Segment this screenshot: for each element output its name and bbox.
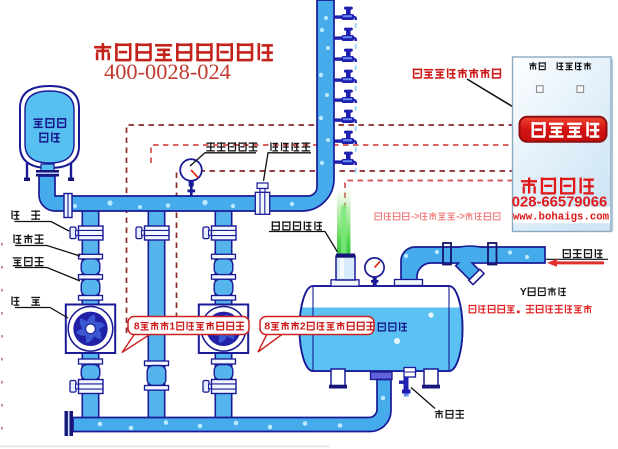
svg-text:1: 1 (169, 321, 175, 332)
svg-text:400-0028-024: 400-0028-024 (104, 59, 231, 84)
svg-text:>: > (459, 212, 465, 223)
svg-text:>: > (414, 212, 420, 223)
svg-text:8: 8 (264, 321, 270, 332)
svg-text:www.bohaigs.com: www.bohaigs.com (513, 212, 610, 224)
svg-text:Y: Y (520, 287, 527, 298)
svg-text:8: 8 (134, 321, 140, 332)
svg-text:2: 2 (300, 321, 306, 332)
